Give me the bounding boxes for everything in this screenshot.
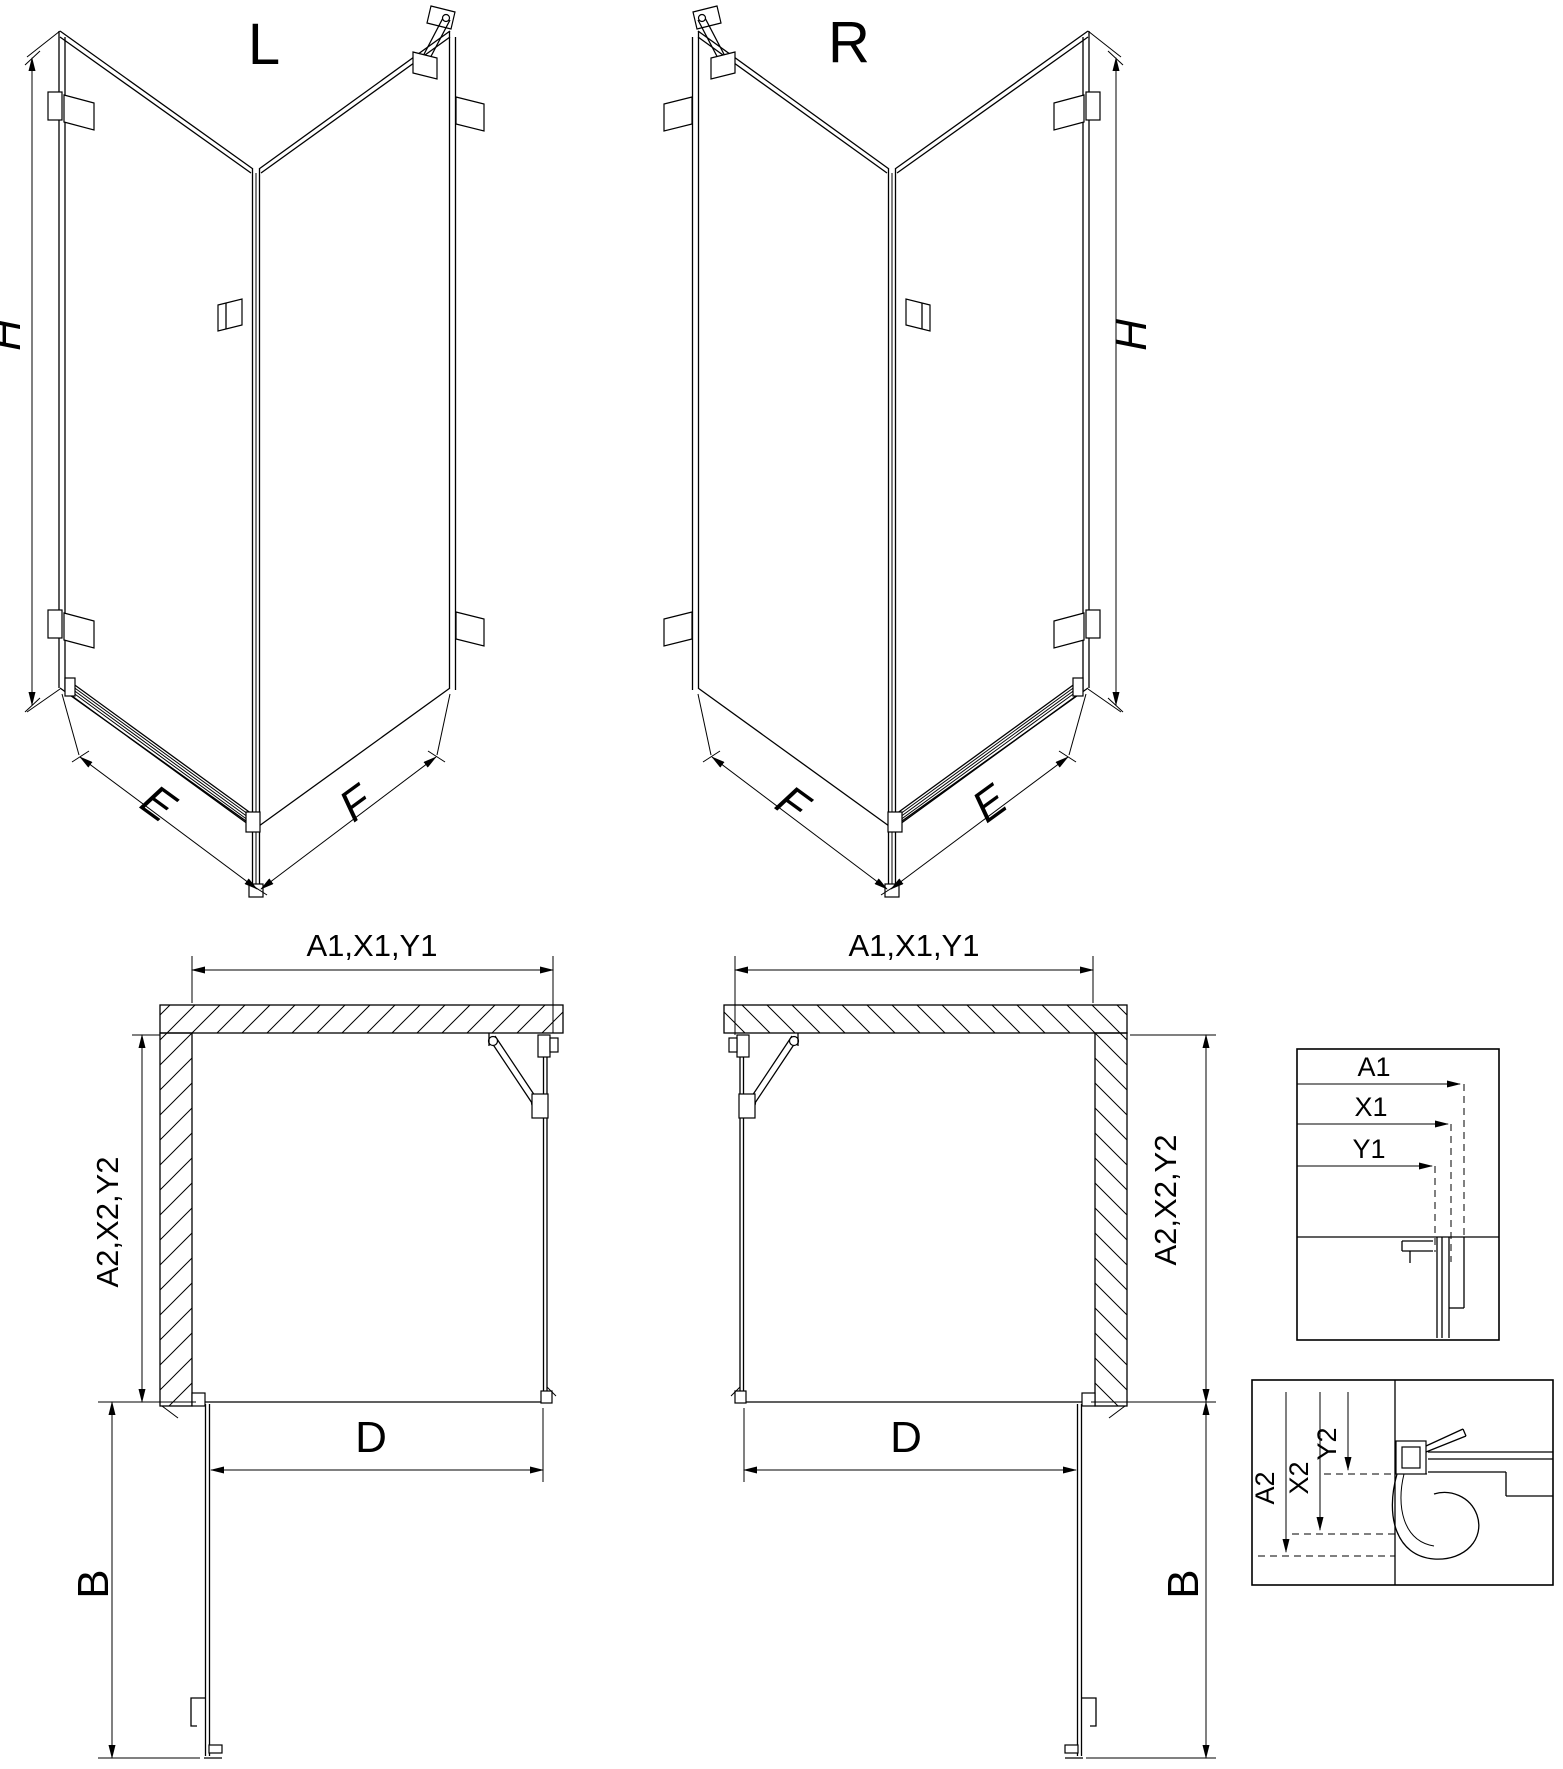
detail-box-horizontal-dims: A1 X1 Y1 <box>1297 1049 1499 1340</box>
hinge-bottom <box>48 610 62 638</box>
dim-height-right: H <box>1107 319 1156 351</box>
detail-box-vertical-dims: A2 X2 Y2 <box>1250 1380 1553 1585</box>
iso-enclosure-geometry <box>25 6 484 897</box>
hinge-top <box>48 92 62 120</box>
left-plan-opening-width: D <box>355 1413 387 1462</box>
dim-fixed-side-right: F <box>767 776 819 833</box>
door-handle <box>218 299 242 331</box>
plan-enclosure-geometry-mirrored <box>724 1005 1127 1758</box>
right-plan-door-projection: B <box>1159 1569 1208 1598</box>
detail-x2-label: X2 <box>1284 1461 1314 1494</box>
left-plan-top-dim: A1,X1,Y1 <box>307 928 438 963</box>
bottom-profile-section <box>1392 1429 1553 1559</box>
wall-side <box>160 1033 192 1406</box>
left-plan-side-dim: A2,X2,Y2 <box>90 1157 125 1288</box>
right-plan-side-dim: A2,X2,Y2 <box>1148 1135 1183 1266</box>
left-plan-door-projection: B <box>69 1569 118 1598</box>
wall-clamp-top <box>456 97 484 131</box>
right-plan-dimensions: A1,X1,Y1 A2,X2,Y2 B D <box>735 928 1216 1758</box>
label-left-variant: L <box>248 12 280 77</box>
plan-enclosure-geometry <box>160 1005 563 1758</box>
detail-y2-label: Y2 <box>1312 1427 1342 1460</box>
left-plan-dimensions: A1,X1,Y1 A2,X2,Y2 B D <box>69 928 553 1758</box>
wall-top <box>160 1005 563 1033</box>
detail-y1-label: Y1 <box>1352 1134 1385 1164</box>
shower-enclosure-diagram: L R H H E F E F <box>0 0 1563 1769</box>
label-right-variant: R <box>828 10 870 75</box>
dim-door-side-left: E <box>132 775 185 832</box>
detail-a1-label: A1 <box>1357 1052 1390 1082</box>
dim-height-left: H <box>0 319 30 351</box>
iso-enclosure-geometry-mirrored <box>664 6 1123 897</box>
detail-x1-label: X1 <box>1354 1092 1387 1122</box>
wall-clamp-bottom <box>456 612 484 646</box>
technical-drawing-page: L R H H E F E F <box>0 0 1563 1769</box>
dim-door-side-right: E <box>963 775 1016 832</box>
open-door-plan <box>191 1404 222 1758</box>
detail-a2-label: A2 <box>1250 1471 1280 1504</box>
right-plan-top-dim: A1,X1,Y1 <box>849 928 980 963</box>
right-plan-opening-width: D <box>890 1413 922 1462</box>
